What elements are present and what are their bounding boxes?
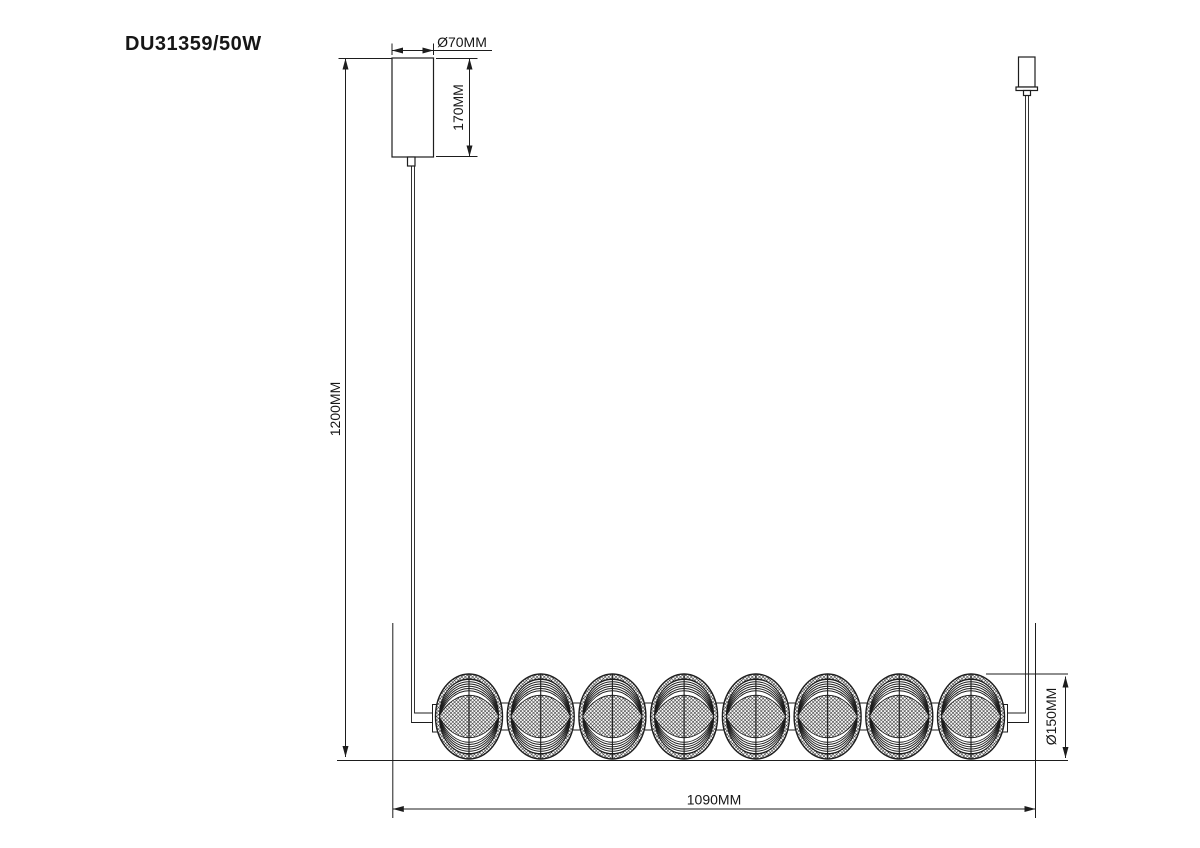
- fixture-bar: [433, 674, 1008, 759]
- crystal-ball: [436, 674, 503, 759]
- crystal-ball: [507, 674, 574, 759]
- dim-drop-height: 1200MM: [327, 59, 1068, 761]
- technical-drawing-page: DU31359/50W Ø70MM 170MM: [0, 0, 1200, 848]
- crystal-ball: [579, 674, 646, 759]
- crystal-ball: [651, 674, 718, 759]
- right-canopy: [1016, 57, 1038, 96]
- right-canopy-body: [1019, 57, 1036, 87]
- crystal-ball: [794, 674, 861, 759]
- canopy-diameter-label: Ø70MM: [437, 34, 487, 50]
- dim-canopy-height: 170MM: [436, 59, 478, 157]
- product-code: DU31359/50W: [125, 33, 262, 55]
- left-suspension-wire: [412, 166, 436, 723]
- crystal-ball: [722, 674, 789, 759]
- dim-canopy-diameter: Ø70MM: [392, 34, 492, 55]
- canopy-height-label: 170MM: [450, 84, 466, 131]
- drop-height-label: 1200MM: [327, 382, 343, 436]
- ball-diameter-label: Ø150MM: [1043, 688, 1059, 746]
- pendant-lamp-dimension-diagram: DU31359/50W Ø70MM 170MM: [0, 0, 1200, 848]
- left-canopy-nipple: [408, 157, 416, 166]
- crystal-balls-row: [436, 674, 1005, 759]
- crystal-ball: [938, 674, 1005, 759]
- crystal-ball: [866, 674, 933, 759]
- fixture-length-label: 1090MM: [687, 792, 741, 808]
- right-suspension-wire: [1005, 96, 1029, 723]
- left-canopy: [392, 58, 434, 166]
- left-canopy-body: [392, 58, 434, 157]
- right-canopy-nipple: [1024, 91, 1031, 96]
